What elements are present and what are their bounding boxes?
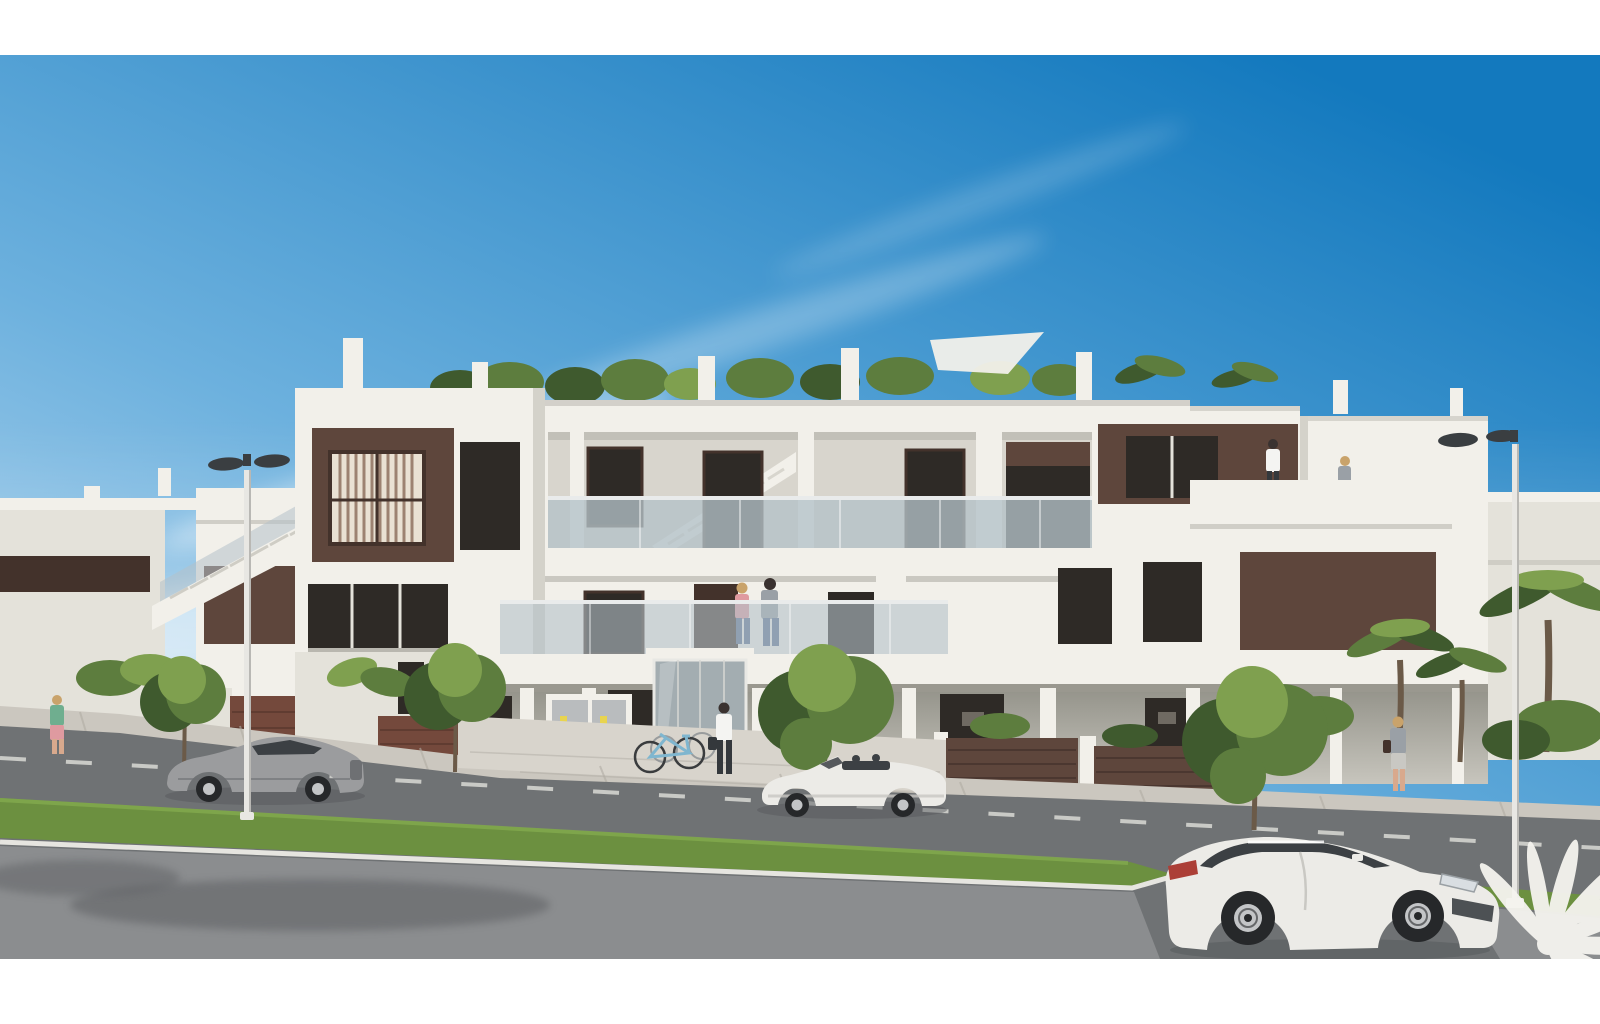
- slab-line: [1488, 560, 1600, 565]
- chimney: [158, 468, 171, 496]
- glass-balustrade: [548, 500, 1092, 554]
- wheel-hub: [1414, 912, 1422, 920]
- palm-trunk: [1460, 680, 1462, 762]
- canopy: [428, 643, 482, 697]
- soffit-shadow: [548, 432, 1092, 440]
- palm-frond: [1512, 570, 1584, 590]
- person-head: [719, 703, 730, 714]
- headrest: [872, 754, 880, 762]
- logo-centre: [1537, 933, 1559, 955]
- render-scene-stage: [0, 0, 1600, 1024]
- parapet-shadow: [1190, 406, 1300, 411]
- person-head: [52, 695, 62, 705]
- person-head: [1268, 439, 1278, 449]
- brown-header: [1006, 442, 1090, 466]
- wheel-hub: [1244, 914, 1252, 922]
- roof-shrub: [866, 357, 934, 395]
- bag: [1383, 740, 1391, 753]
- canopy: [158, 656, 206, 704]
- bag: [708, 737, 717, 750]
- person-torso: [716, 714, 732, 741]
- edge-shade: [1300, 416, 1308, 482]
- window-band: [308, 584, 448, 648]
- person-skirt: [50, 725, 64, 740]
- shrub: [1102, 724, 1158, 748]
- rail-top: [548, 496, 1092, 500]
- person-head: [1393, 717, 1404, 728]
- person-leg: [59, 739, 64, 754]
- wheel-rim: [792, 800, 803, 811]
- person-leg: [52, 739, 57, 754]
- parapet-shadow: [1300, 416, 1488, 421]
- chimney: [1076, 352, 1092, 400]
- parapet-shadow: [545, 400, 1190, 406]
- wheel-rim: [203, 783, 215, 795]
- shrub: [970, 713, 1030, 739]
- parapet: [1488, 492, 1600, 502]
- window: [1143, 562, 1202, 642]
- person-head: [737, 583, 748, 594]
- wheel-rim: [312, 783, 324, 795]
- roof-shrub: [545, 367, 605, 405]
- tail: [350, 760, 362, 780]
- rail-top: [500, 600, 948, 604]
- floor-slab: [545, 548, 1092, 576]
- curtain-window: [332, 454, 422, 542]
- lamp-cap: [1510, 430, 1518, 442]
- chimney: [1333, 380, 1348, 414]
- cockpit: [842, 761, 890, 770]
- canopy: [1210, 748, 1266, 804]
- chimney: [841, 348, 859, 400]
- render-scene: [0, 0, 1600, 1024]
- canopy: [788, 644, 856, 712]
- person-head: [1340, 456, 1350, 466]
- canopy: [1216, 666, 1288, 738]
- parapet: [0, 498, 200, 510]
- roof-shrub: [726, 358, 794, 398]
- person-head: [764, 578, 776, 590]
- side-mirror: [1352, 854, 1363, 861]
- wheel-rim: [898, 800, 909, 811]
- frame-bottom-bar: [0, 959, 1600, 1024]
- person-torso: [1390, 728, 1406, 754]
- terrace-parapet: [1190, 480, 1452, 526]
- person-skirt: [1391, 753, 1406, 770]
- person-leg: [726, 740, 732, 774]
- pole-base: [240, 812, 254, 820]
- window-band: [0, 556, 150, 592]
- chimney: [698, 356, 715, 402]
- glass-balustrade: [500, 604, 948, 654]
- person-leg: [717, 740, 723, 774]
- person-leg: [1400, 769, 1405, 791]
- pole-shade: [1517, 444, 1519, 904]
- window: [1058, 568, 1112, 644]
- pole-shade: [249, 470, 251, 816]
- parapet-shadow: [1190, 524, 1452, 529]
- top-floor: [548, 432, 1092, 556]
- tv-glow: [1158, 712, 1176, 724]
- frame-top-bar: [0, 0, 1600, 55]
- person-torso: [1266, 449, 1280, 472]
- window: [460, 442, 520, 550]
- headrest: [852, 755, 860, 763]
- chimney: [1450, 388, 1463, 416]
- entrance-canopy: [646, 648, 754, 660]
- lamp-cap: [243, 454, 251, 466]
- person-torso: [50, 705, 64, 726]
- slab-shadow: [545, 576, 1092, 582]
- person-leg: [1393, 769, 1398, 791]
- chimney: [343, 338, 363, 394]
- roof-shrub: [601, 359, 669, 401]
- floor-slab: [430, 654, 1488, 684]
